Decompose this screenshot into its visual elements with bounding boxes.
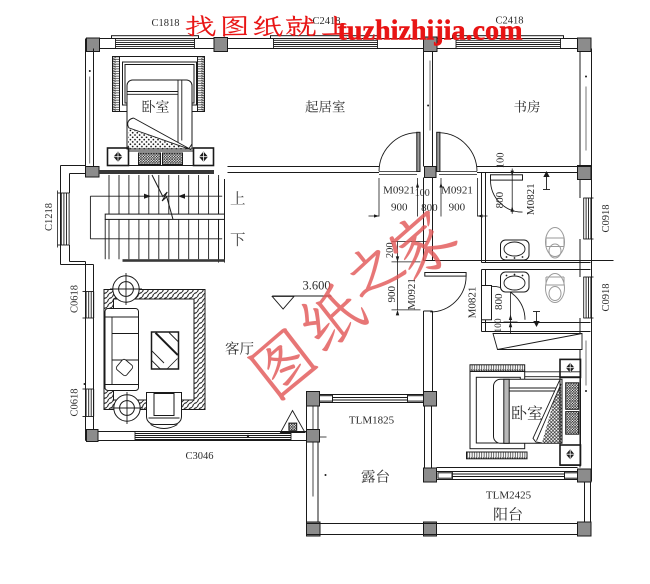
svg-text:M0921: M0921 — [406, 278, 418, 310]
svg-text:100: 100 — [494, 318, 504, 333]
svg-text:C1218: C1218 — [44, 203, 55, 231]
svg-text:3.600: 3.600 — [302, 278, 330, 292]
svg-text:TLM1825: TLM1825 — [349, 415, 395, 427]
svg-text:M0821: M0821 — [467, 287, 479, 319]
svg-text:TLM2425: TLM2425 — [486, 490, 532, 502]
svg-text:100: 100 — [495, 153, 506, 169]
svg-text:800: 800 — [494, 191, 506, 208]
svg-text:100: 100 — [415, 188, 430, 199]
svg-text:C0618: C0618 — [69, 285, 80, 313]
svg-text:900: 900 — [449, 201, 466, 213]
svg-text:900: 900 — [391, 201, 408, 213]
svg-text:C0918: C0918 — [601, 283, 612, 311]
svg-text:C3046: C3046 — [185, 451, 213, 462]
svg-text:C0618: C0618 — [69, 388, 80, 416]
svg-text:M0921: M0921 — [383, 184, 415, 196]
svg-text:M0921: M0921 — [441, 184, 473, 196]
svg-text:800: 800 — [493, 293, 505, 310]
svg-text:C0918: C0918 — [601, 204, 612, 232]
svg-text:M0821: M0821 — [525, 183, 537, 215]
svg-text:900: 900 — [386, 286, 398, 303]
svg-text:tuzhizhijia.com: tuzhizhijia.com — [338, 15, 523, 46]
svg-text:C1818: C1818 — [151, 18, 179, 29]
